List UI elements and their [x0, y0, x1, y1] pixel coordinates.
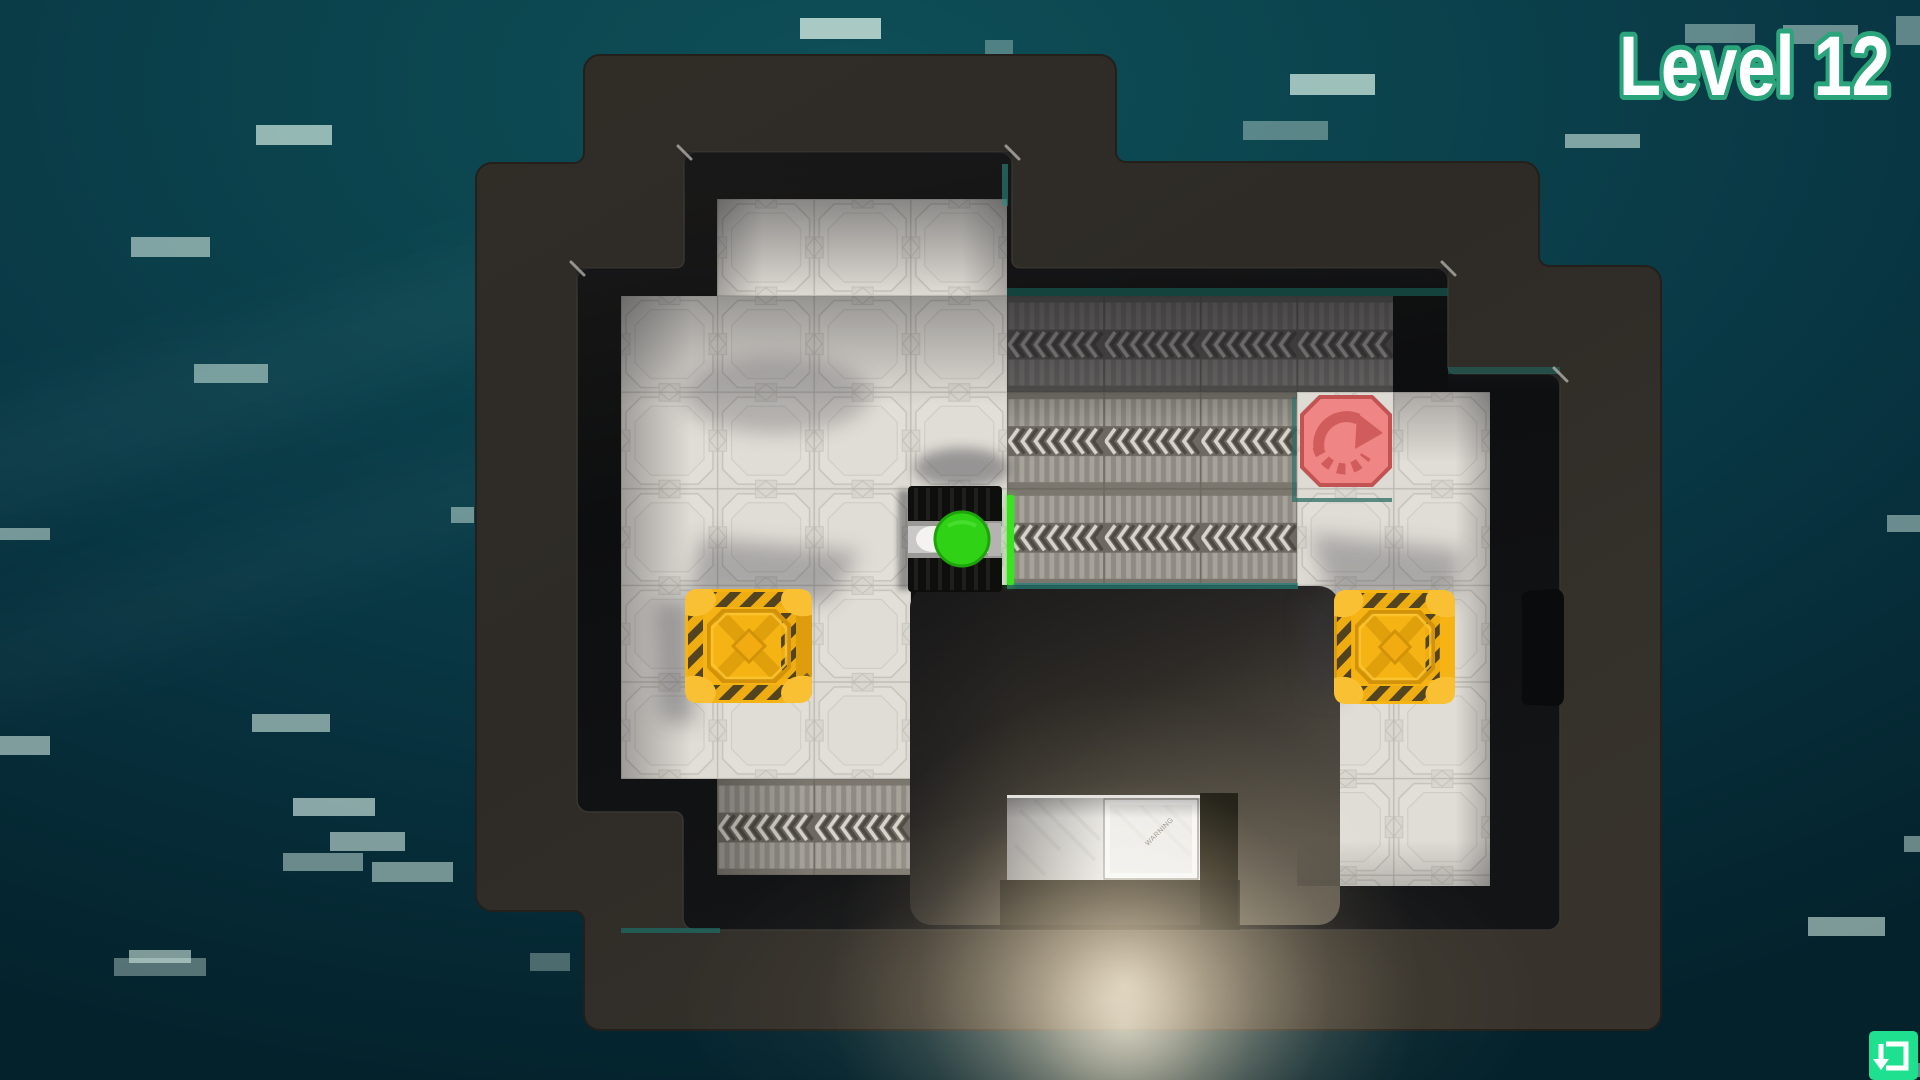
- svg-text:Level 12: Level 12: [1619, 19, 1890, 113]
